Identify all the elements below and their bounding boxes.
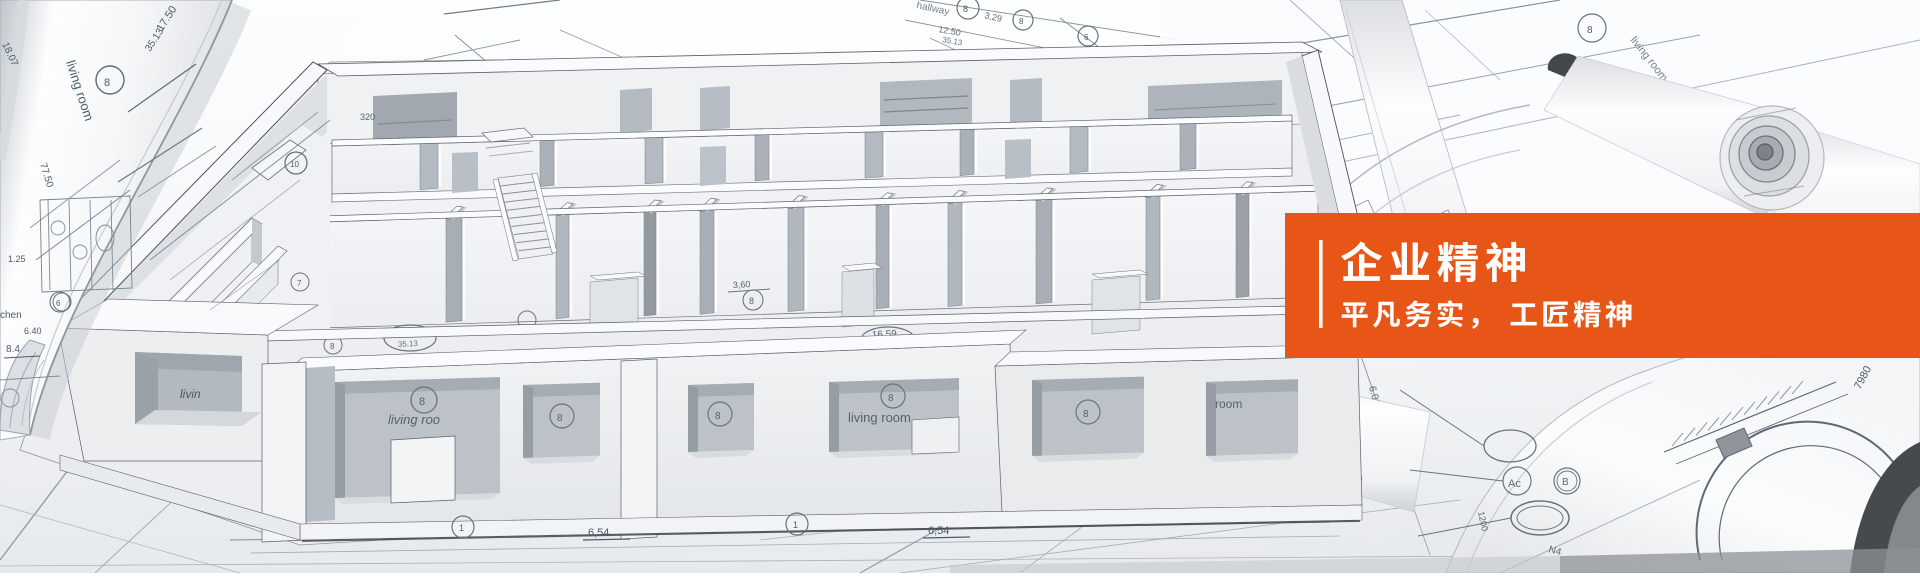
svg-text:B: B	[1562, 477, 1569, 488]
svg-text:livin: livin	[180, 387, 201, 401]
svg-text:8: 8	[1587, 25, 1593, 36]
svg-text:8: 8	[419, 396, 425, 408]
svg-text:320: 320	[360, 112, 375, 122]
svg-text:8: 8	[715, 411, 721, 422]
svg-text:6: 6	[56, 299, 61, 308]
svg-text:1: 1	[459, 523, 464, 533]
svg-text:8: 8	[749, 296, 754, 306]
svg-text:8: 8	[1019, 17, 1024, 26]
svg-text:10: 10	[290, 160, 299, 169]
svg-text:8: 8	[963, 4, 968, 14]
svg-text:6,54: 6,54	[588, 527, 609, 539]
svg-text:1: 1	[793, 520, 798, 530]
svg-text:8: 8	[557, 413, 563, 424]
svg-text:chen: chen	[0, 310, 22, 321]
svg-text:8: 8	[104, 77, 110, 89]
svg-text:7: 7	[297, 279, 302, 288]
svg-text:6.40: 6.40	[24, 326, 42, 336]
svg-text:6: 6	[1084, 33, 1089, 42]
svg-text:8: 8	[1083, 409, 1089, 420]
svg-text:1.25: 1.25	[8, 254, 26, 264]
svg-text:35.13: 35.13	[398, 339, 419, 349]
svg-text:living room: living room	[848, 410, 911, 425]
svg-text:Ac: Ac	[1508, 478, 1521, 490]
svg-text:8: 8	[330, 342, 335, 351]
svg-text:3,60: 3,60	[733, 279, 751, 290]
svg-text:8.4: 8.4	[6, 344, 20, 355]
svg-text:6,54: 6,54	[928, 525, 949, 537]
svg-text:living roo: living roo	[388, 412, 440, 427]
svg-text:8: 8	[888, 393, 894, 404]
svg-text:room: room	[1215, 397, 1242, 411]
